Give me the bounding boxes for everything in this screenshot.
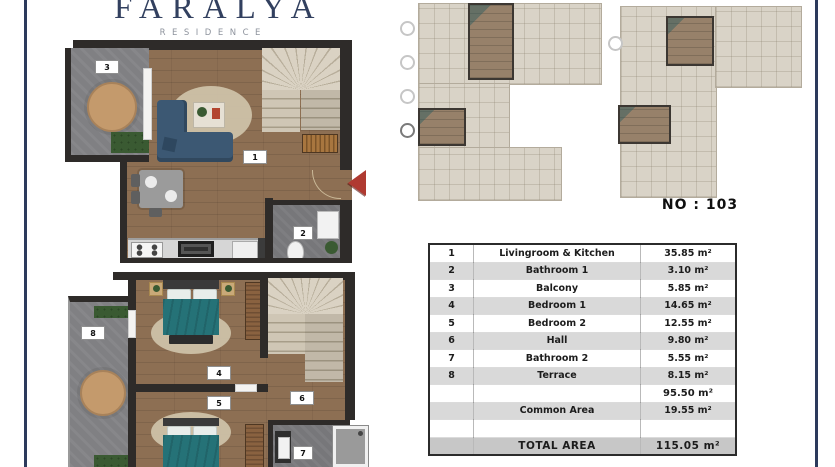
- room-marker-bath1: 2: [293, 226, 313, 240]
- row-num: [429, 437, 474, 455]
- row-area: 19.55 m²: [641, 402, 737, 420]
- row-name: Hall: [474, 332, 641, 350]
- row-area: 14.65 m²: [641, 297, 737, 315]
- wall-bottom: [120, 258, 352, 263]
- wall-right-upper: [340, 48, 352, 170]
- keyplan-highlighted-unit-upper: [468, 3, 514, 80]
- subtotal-area: 95.50 m²: [641, 385, 737, 403]
- row-area: 5.85 m²: [641, 280, 737, 298]
- floorplan-brochure-page: FARALYA RESIDENCE 3 1: [0, 0, 835, 467]
- row-area: 5.55 m²: [641, 350, 737, 368]
- area-table: 1 Livingroom & Kitchen 35.85 m² 2 Bathro…: [428, 243, 737, 456]
- keyplan-highlighted-unit-lower: [618, 105, 671, 144]
- upper-floor-plan: 3 1: [65, 40, 352, 263]
- keyplan-wing: [715, 6, 802, 88]
- room-marker-label: 4: [216, 369, 222, 378]
- keyplan-level-marker: [400, 55, 415, 70]
- table-row: 1 Livingroom & Kitchen 35.85 m²: [429, 244, 736, 262]
- row-area: [641, 420, 737, 438]
- shower: [333, 426, 368, 467]
- wall-bedrooms-right: [257, 384, 268, 392]
- row-num: 2: [429, 262, 474, 280]
- terrace-table: [80, 370, 126, 416]
- dining-chair: [131, 174, 140, 187]
- wall-stairs: [260, 278, 268, 358]
- unit-number: NO : 103: [645, 197, 755, 213]
- table-row: 4 Bedroom 1 14.65 m²: [429, 297, 736, 315]
- wall-bedrooms-left: [135, 384, 235, 392]
- staircase-steps-right: [305, 314, 343, 382]
- keyplan-highlighted-unit-upper: [666, 16, 714, 66]
- table-row: 7 Bathroom 2 5.55 m²: [429, 350, 736, 368]
- bedroom2-door: [235, 384, 257, 392]
- table-row: 2 Bathroom 1 3.10 m²: [429, 262, 736, 280]
- staircase-steps-left: [262, 90, 300, 132]
- room-marker-label: 8: [90, 329, 96, 338]
- room-marker-label: 1: [252, 153, 258, 162]
- keyplan-level-marker: [400, 21, 415, 36]
- row-num: 1: [429, 244, 474, 262]
- row-name: Bathroom 2: [474, 350, 641, 368]
- subtotal-row: 95.50 m²: [429, 385, 736, 403]
- balcony-table: [87, 82, 137, 132]
- row-name: Common Area: [474, 402, 641, 420]
- room-marker-label: 3: [104, 63, 110, 72]
- bed1-blanket: [163, 299, 219, 335]
- balcony-door: [143, 68, 152, 140]
- wall-right-lower: [340, 200, 352, 263]
- lower-floor-plan: 8 4 6 5: [55, 272, 370, 467]
- keyplan-left: [398, 3, 608, 199]
- nightstand: [221, 282, 235, 296]
- row-area: 35.85 m²: [641, 244, 737, 262]
- room-marker-label: 7: [300, 449, 306, 458]
- row-num: [429, 402, 474, 420]
- staircase-steps-right: [301, 90, 340, 130]
- common-area-row: Common Area 19.55 m²: [429, 402, 736, 420]
- bedroom2-wardrobe: [245, 424, 264, 467]
- bed1-bench: [169, 335, 213, 344]
- page-border-left: [24, 0, 27, 467]
- brand-logo: FARALYA RESIDENCE: [105, 0, 315, 44]
- staircase-steps-left: [268, 314, 305, 354]
- room-marker-label: 5: [216, 399, 222, 408]
- table-row: 3 Balcony 5.85 m²: [429, 280, 736, 298]
- terrace-plant: [94, 306, 128, 318]
- row-name: Bedroom 1: [474, 297, 641, 315]
- keyplan-right: [608, 0, 808, 205]
- row-name: [474, 385, 641, 403]
- wall-right: [345, 278, 355, 420]
- row-num: [429, 385, 474, 403]
- bed2-headboard: [163, 418, 219, 426]
- staircase-fan: [262, 48, 340, 90]
- row-name: Livingroom & Kitchen: [474, 244, 641, 262]
- dining-chair: [131, 191, 140, 204]
- room-marker-bath2: 7: [293, 446, 313, 460]
- room-marker-hall: 6: [290, 391, 314, 405]
- keyplan-highlighted-unit-lower: [418, 108, 466, 146]
- row-name: [474, 420, 641, 438]
- keyplan-level-marker-active: [400, 123, 415, 138]
- total-label: TOTAL AREA: [474, 437, 641, 455]
- coffee-table: [193, 102, 225, 128]
- brand-title: FARALYA: [105, 0, 315, 27]
- table-row: 6 Hall 9.80 m²: [429, 332, 736, 350]
- terrace-plant: [94, 455, 128, 467]
- total-area: 115.05 m²: [641, 437, 737, 455]
- sofa-pillow: [162, 137, 177, 152]
- dining-table: [139, 170, 183, 208]
- keyplan-wing: [418, 147, 562, 201]
- room-marker-bed2: 5: [207, 396, 231, 410]
- dining-chair: [149, 208, 162, 217]
- bathroom-wall: [265, 198, 273, 263]
- stair-bench: [302, 134, 338, 153]
- row-num: 4: [429, 297, 474, 315]
- row-area: 12.55 m²: [641, 315, 737, 333]
- kitchen-counter: [128, 238, 258, 258]
- nightstand: [149, 282, 163, 296]
- row-area: 3.10 m²: [641, 262, 737, 280]
- wall-left: [120, 158, 127, 263]
- bed2-blanket: [163, 435, 219, 467]
- terrace: [68, 296, 130, 467]
- entrance-arrow-icon: [348, 170, 366, 196]
- row-area: 8.15 m²: [641, 367, 737, 385]
- brand-subtitle: RESIDENCE: [105, 28, 315, 38]
- room-marker-balcony: 3: [95, 60, 119, 74]
- keyplan-level-marker: [608, 36, 623, 51]
- bed1-headboard: [163, 280, 219, 289]
- row-name: Bedroom 2: [474, 315, 641, 333]
- terrace-door: [128, 310, 136, 338]
- total-row: TOTAL AREA 115.05 m²: [429, 437, 736, 455]
- wall-terrace-upper: [128, 278, 136, 310]
- empty-row: [429, 420, 736, 438]
- room-marker-terrace: 8: [81, 326, 105, 340]
- row-num: 8: [429, 367, 474, 385]
- row-num: 7: [429, 350, 474, 368]
- row-num: 6: [429, 332, 474, 350]
- row-name: Balcony: [474, 280, 641, 298]
- table-row: 5 Bedroom 2 12.55 m²: [429, 315, 736, 333]
- row-num: 5: [429, 315, 474, 333]
- row-num: [429, 420, 474, 438]
- row-num: 3: [429, 280, 474, 298]
- row-name: Terrace: [474, 367, 641, 385]
- staircase-fan: [268, 278, 343, 314]
- page-border-right: [815, 0, 818, 467]
- row-area: 9.80 m²: [641, 332, 737, 350]
- table-row: 8 Terrace 8.15 m²: [429, 367, 736, 385]
- keyplan-level-marker: [400, 89, 415, 104]
- row-name: Bathroom 1: [474, 262, 641, 280]
- wall-terrace-lower: [128, 338, 136, 467]
- room-marker-bed1: 4: [207, 366, 231, 380]
- room-marker-living: 1: [243, 150, 267, 164]
- room-marker-label: 2: [300, 229, 306, 238]
- room-marker-label: 6: [299, 394, 305, 403]
